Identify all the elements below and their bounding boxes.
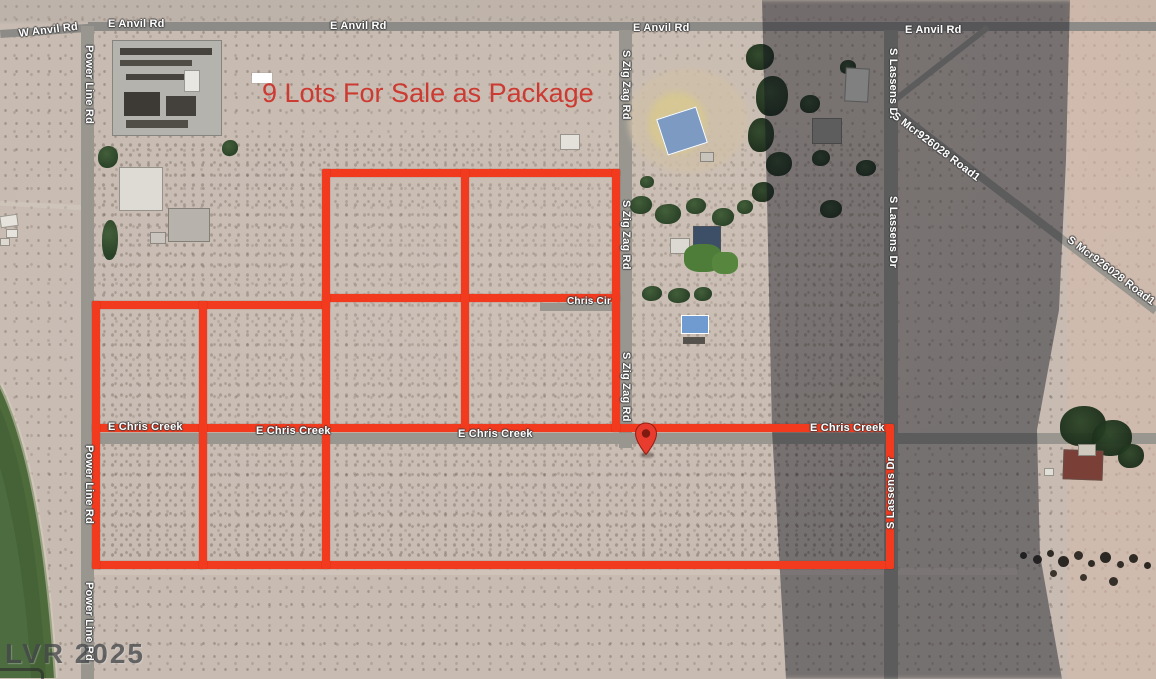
tree (98, 146, 118, 168)
building (1078, 444, 1096, 456)
shed (1044, 468, 1054, 476)
substation-equipment (126, 74, 184, 80)
tree (686, 198, 706, 214)
road-label: S Zig Zag Rd (620, 352, 632, 422)
road-label: S Lassens Dr (887, 196, 899, 268)
road-label: S Lassens Dr (885, 457, 897, 529)
green-field (0, 378, 72, 679)
road-label: E Chris Creek (458, 428, 533, 440)
tree (630, 196, 652, 214)
road-label: E Chris Creek (256, 425, 331, 437)
satellite-map: W Anvil RdE Anvil RdE Anvil RdE Anvil Rd… (0, 0, 1156, 679)
lot-boundary-line (461, 169, 469, 432)
building (560, 134, 580, 150)
tree (642, 286, 662, 301)
lot-boundary-line (322, 169, 330, 569)
lot-boundary-line (92, 301, 330, 309)
building (0, 238, 10, 246)
shed (700, 152, 714, 162)
road-label: Chris Cir (567, 296, 611, 307)
lot-boundary-line (199, 301, 207, 569)
building (119, 167, 163, 211)
tree (1118, 444, 1144, 468)
road-label: S Zig Zag Rd (620, 200, 632, 270)
building (0, 214, 19, 228)
road-label: E Anvil Rd (905, 24, 962, 36)
road-label: E Anvil Rd (633, 22, 690, 34)
tree (655, 204, 681, 224)
shed (150, 232, 166, 244)
substation-equipment (126, 120, 188, 128)
shed (683, 337, 705, 344)
road-label: Power Line Rd (83, 45, 95, 124)
road-label: Power Line Rd (83, 445, 95, 524)
listing-banner-text: 9 Lots For Sale as Package (262, 78, 594, 109)
tree (640, 176, 654, 188)
watermark-corner-box (0, 668, 44, 679)
substation-equipment (124, 92, 160, 116)
lot-boundary-line (92, 561, 894, 569)
road-label: E Anvil Rd (108, 18, 165, 30)
substation-building (184, 70, 200, 92)
blue-roof-building (681, 315, 709, 334)
road-label: E Chris Creek (108, 421, 183, 433)
tree (222, 140, 238, 156)
road-label: E Chris Creek (810, 422, 885, 434)
substation-equipment (120, 48, 212, 55)
tree (102, 220, 118, 260)
tree (694, 287, 712, 301)
lot-boundary-line (92, 301, 100, 569)
tree (737, 200, 753, 214)
road-label: S Zig Zag Rd (620, 50, 632, 120)
lot-boundary-line (612, 169, 620, 432)
location-pin-icon (634, 422, 658, 456)
building (168, 208, 210, 242)
lot-boundary-line (322, 169, 620, 177)
substation-equipment (166, 96, 196, 116)
tree (712, 208, 734, 226)
lawn (712, 252, 738, 274)
listing-banner: 9 Lots For Sale as Package (252, 73, 272, 83)
road-label: E Anvil Rd (330, 20, 387, 32)
watermark: LVR 2025 (5, 638, 145, 670)
substation-equipment (120, 60, 192, 66)
tree (668, 288, 690, 303)
building (6, 229, 18, 238)
